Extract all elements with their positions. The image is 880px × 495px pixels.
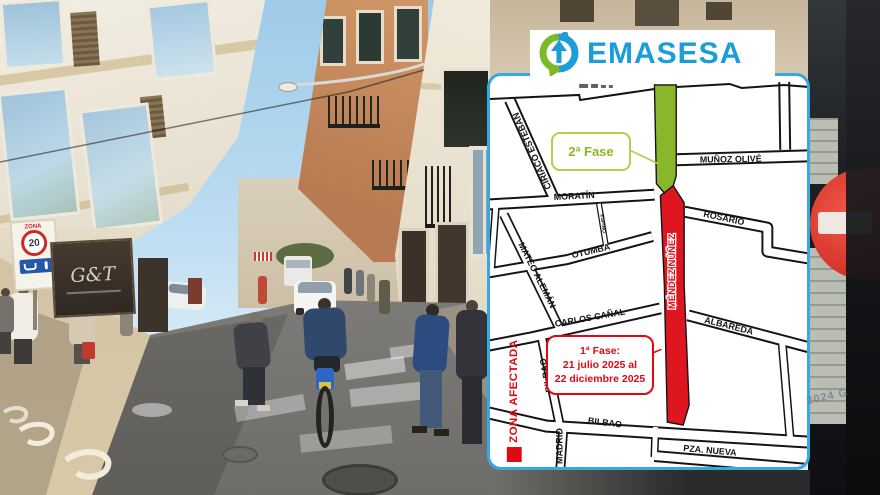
pedestrian-shoe: [412, 426, 427, 433]
phase1-dates-end: 22 diciembre 2025: [555, 372, 645, 386]
sign-pole: [33, 286, 37, 330]
street-label-ciriaco: CIRIACO ESTEBAN: [511, 111, 554, 191]
tiled-wall: [808, 118, 838, 184]
recycle-arrows-icon: [538, 32, 580, 76]
van-window: [286, 260, 310, 268]
pedestrian-legs: [462, 376, 482, 444]
street-map: CIRIACO ESTEBAN MUÑOZ OLIVÉ MORATÍN ROSA…: [490, 76, 807, 467]
pedestrian-distant: [258, 276, 267, 304]
phase1-callout-box: 1ª Fase: 21 julio 2025 al 22 diciembre 2…: [546, 335, 654, 395]
pedestrian-torso: [233, 321, 272, 370]
phase2-callout-box: 2ª Fase: [551, 132, 631, 171]
bike-lane-symbol: [66, 452, 108, 477]
pedestrian-distant: [367, 274, 375, 302]
legend-label: ZONA AFECTADA: [508, 339, 520, 442]
man-blue-jacket: [412, 304, 452, 436]
pedestrian-torso: [0, 296, 14, 334]
pedestrian-distant: [344, 268, 352, 294]
storefront-caption-line: [66, 289, 121, 294]
phase1-title: 1ª Fase:: [580, 344, 620, 358]
street-lamp-head: [279, 83, 297, 92]
pedestrian-icon: [44, 261, 48, 269]
street-label-mendez-nunez: MÉNDEZ NÚÑEZ: [666, 234, 678, 309]
news-composite-image: ZONA 20 G&T 2024 G: [0, 0, 880, 495]
emasesa-logo-box: EMASESA: [530, 30, 775, 77]
street-label-madrid: MADRID: [555, 428, 565, 464]
emasesa-logo-text: EMASESA: [587, 37, 742, 71]
pedestrian-distant: [379, 280, 390, 314]
pedestrian-shoe: [434, 429, 449, 436]
shop-red-door: [188, 278, 202, 304]
bike-pedestrian-pictogram: [19, 258, 52, 274]
street-label-albareda: ALBAREDA: [703, 315, 754, 337]
roadworks-map-inset: CIRIACO ESTEBAN MUÑOZ OLIVÉ MORATÍN ROSA…: [487, 73, 810, 470]
storefront-logo-text: G&T: [70, 262, 116, 286]
zone-sign-speed: 20: [28, 237, 40, 249]
bike-icon: [24, 262, 37, 270]
phase2-label: 2ª Fase: [568, 144, 613, 159]
pedestrian-legs: [14, 339, 32, 364]
storefront-dark: [138, 258, 168, 332]
street-label-munoz: MUÑOZ OLIVÉ: [700, 154, 762, 165]
pedestrian-torso: [456, 310, 488, 380]
window: [706, 2, 732, 20]
road-paint-mark: [132, 403, 172, 417]
pedestrian-shoe: [235, 400, 248, 406]
red-shopping-bag: [82, 342, 95, 359]
pedestrian-shoe: [257, 405, 270, 411]
bike-lane-symbol: [20, 424, 52, 443]
bike-lane-symbol: [4, 408, 26, 421]
pedestrian-legs: [0, 332, 11, 354]
dark-bottom-strip: [495, 470, 810, 495]
street-label-espino: ESPINO: [599, 214, 607, 234]
overhead-cable: [0, 70, 424, 162]
pedestrian-crossing: [233, 312, 279, 412]
pedestrian-legs: [420, 370, 442, 428]
street-lamp-arm: [292, 64, 424, 85]
window: [560, 0, 594, 22]
top-street-edge: [490, 89, 654, 100]
dark-pole: [846, 0, 880, 495]
street-labels: CIRIACO ESTEBAN MUÑOZ OLIVÉ MORATÍN ROSA…: [511, 111, 762, 464]
pedestrian-torso: [412, 314, 450, 374]
phase1-dates-start: 21 julio 2025 al: [563, 358, 637, 372]
cyclist: [296, 298, 352, 450]
obscured-street-label: [579, 84, 613, 88]
legend-red-square-swatch: [507, 447, 522, 462]
pedestrian: [0, 288, 16, 354]
storefront-sign: G&T: [50, 238, 136, 318]
pedestrian-distant: [356, 270, 364, 296]
street-label-moratin: MORATÍN: [553, 190, 594, 202]
bike-wheel: [316, 386, 334, 448]
phase2-segment: [654, 85, 676, 199]
cyclist-torso: [303, 307, 348, 361]
car-rear-window: [298, 282, 332, 293]
window: [635, 0, 679, 26]
zone-20-icon: 20: [20, 229, 48, 257]
street-label-mateo: MATEO ALEMÁN: [516, 241, 557, 310]
